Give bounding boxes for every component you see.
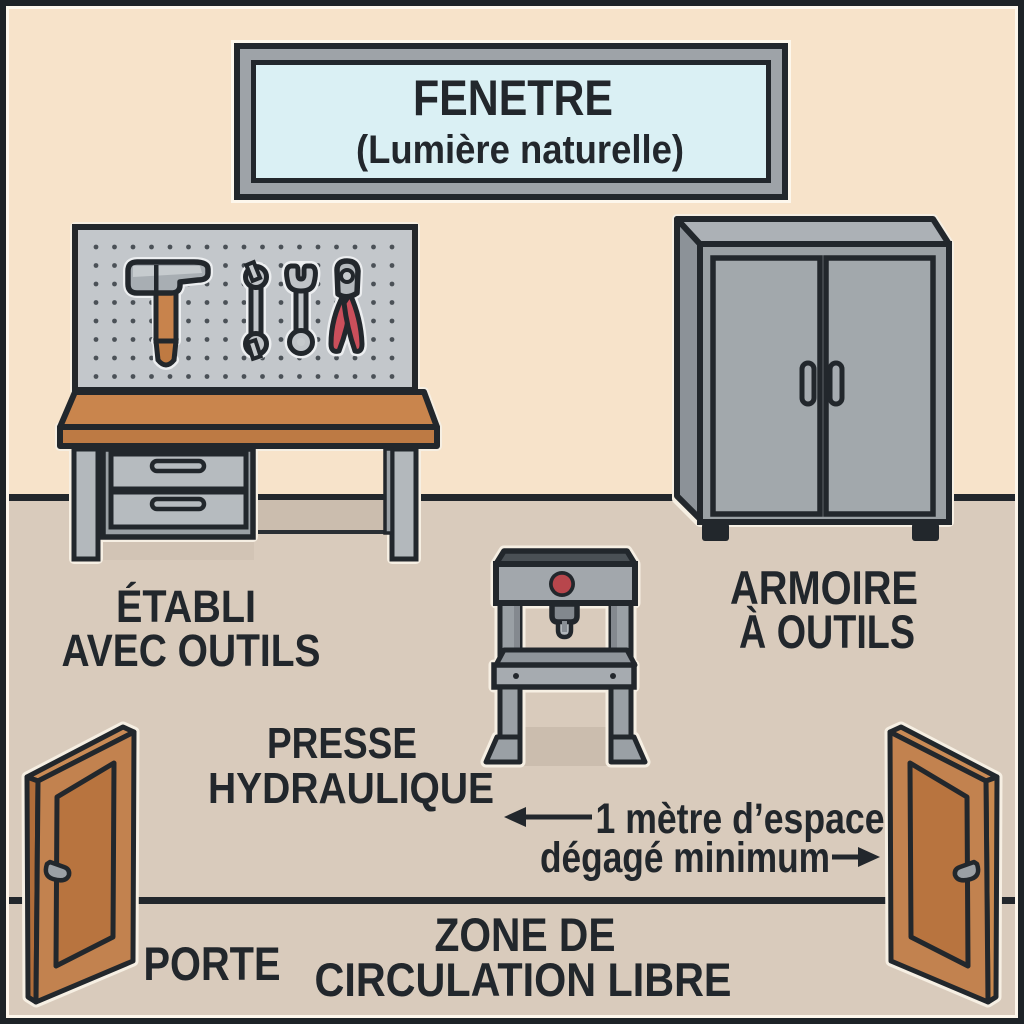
- svg-text:CIRCULATION LIBRE: CIRCULATION LIBRE: [315, 953, 732, 1006]
- svg-text:AVEC OUTILS: AVEC OUTILS: [62, 625, 321, 676]
- svg-text:À OUTILS: À OUTILS: [739, 605, 915, 658]
- svg-text:FENETRE: FENETRE: [413, 70, 613, 126]
- svg-text:PORTE: PORTE: [144, 937, 281, 990]
- svg-text:HYDRAULIQUE: HYDRAULIQUE: [208, 764, 494, 813]
- svg-text:dégagé minimum: dégagé minimum: [540, 834, 830, 882]
- svg-text:PRESSE: PRESSE: [267, 719, 417, 768]
- svg-text:(Lumière naturelle): (Lumière naturelle): [356, 128, 684, 172]
